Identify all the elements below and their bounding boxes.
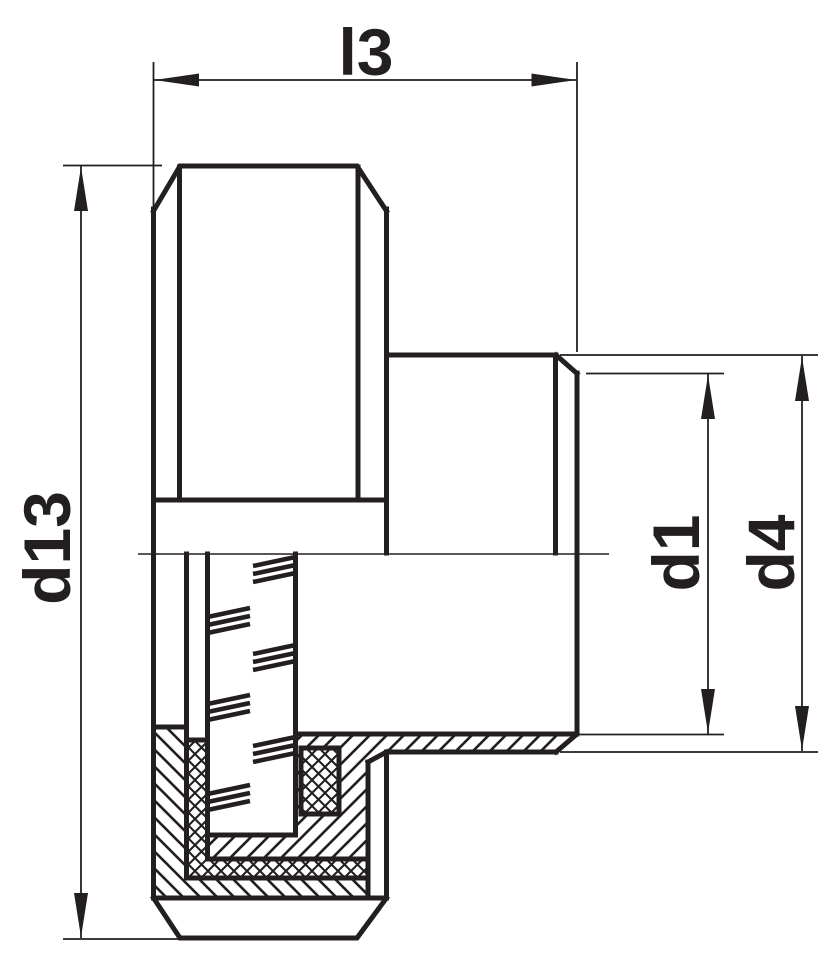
arrowhead-up (795, 357, 809, 401)
dim-label-d1: d1 (639, 514, 713, 591)
technical-drawing-page: l3 d13 d1 d4 (0, 0, 827, 963)
dim-label-d4: d4 (734, 514, 808, 591)
arrowhead-up (701, 375, 715, 419)
arrowhead-left (155, 74, 200, 87)
dimension-l3: l3 (154, 15, 578, 352)
arrowhead-down (701, 689, 715, 733)
dim-label-l3: l3 (338, 15, 393, 89)
arrowhead-down (74, 893, 88, 937)
rim-outline (154, 898, 387, 938)
dim-label-d13: d13 (10, 491, 84, 605)
arrowhead-right (532, 74, 577, 87)
thread-marks (208, 557, 296, 810)
hub-outline (387, 355, 578, 734)
technical-drawing: l3 d13 d1 d4 (0, 0, 827, 963)
arrowhead-up (74, 167, 88, 211)
arrowhead-down (795, 706, 809, 750)
section-elastomer-ring-hatch (301, 748, 339, 814)
